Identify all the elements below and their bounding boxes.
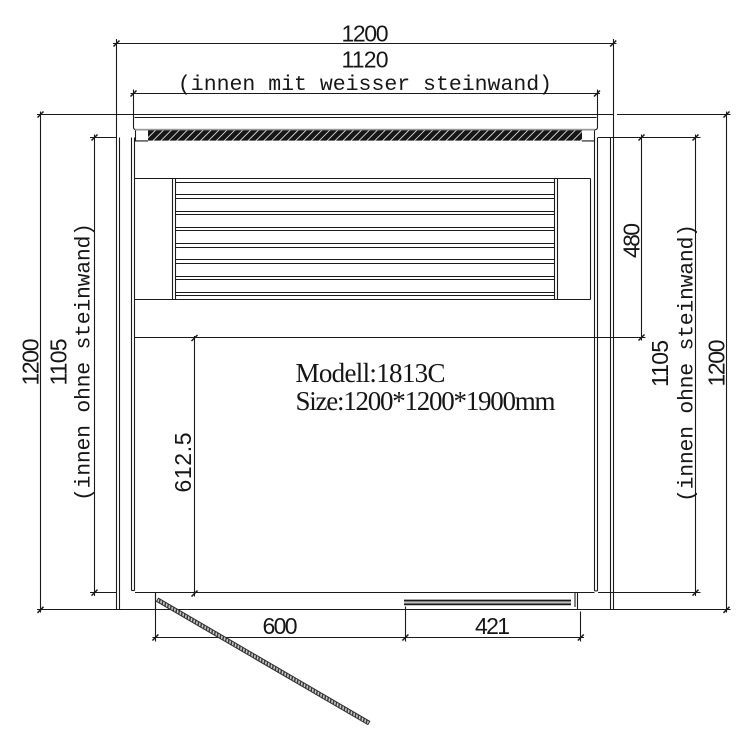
svg-text:Modell:1813C: Modell:1813C	[296, 358, 446, 388]
svg-text:1105: 1105	[46, 339, 72, 386]
svg-text:480: 480	[619, 223, 645, 258]
svg-text:1200: 1200	[704, 340, 730, 387]
svg-text:1200: 1200	[18, 339, 44, 386]
svg-text:600: 600	[263, 613, 298, 639]
svg-text:1105: 1105	[647, 340, 673, 387]
svg-text:612.5: 612.5	[170, 433, 196, 493]
svg-text:1200: 1200	[342, 21, 389, 47]
svg-text:(innen ohne steinwand): (innen ohne steinwand)	[73, 223, 97, 501]
svg-text:1120: 1120	[342, 47, 389, 73]
svg-text:421: 421	[475, 613, 510, 639]
svg-text:(innen mit weisser steinwand): (innen mit weisser steinwand)	[178, 73, 552, 97]
svg-text:Size:1200*1200*1900mm: Size:1200*1200*1900mm	[296, 386, 556, 416]
svg-text:(innen ohne steinwand): (innen ohne steinwand)	[676, 224, 700, 502]
